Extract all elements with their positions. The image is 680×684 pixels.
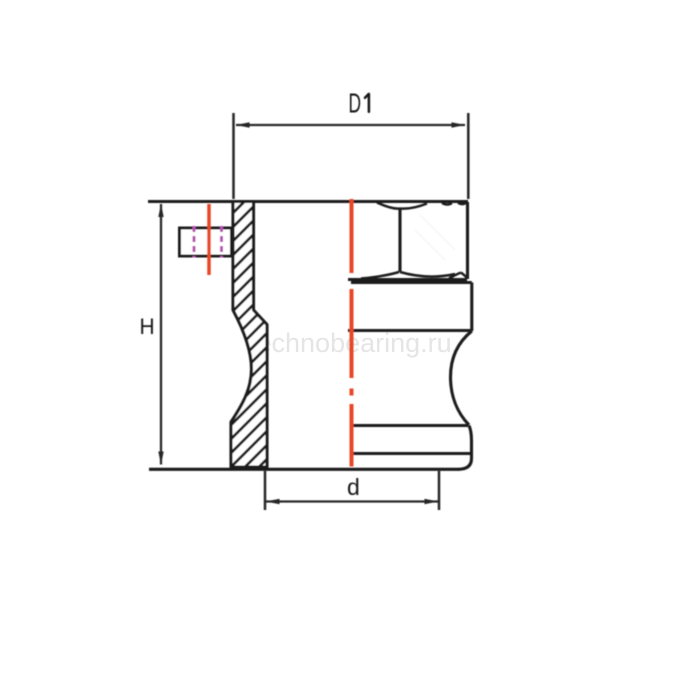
svg-text:H: H	[140, 315, 155, 340]
svg-text:d: d	[347, 474, 360, 500]
svg-text:D: D	[349, 87, 362, 118]
